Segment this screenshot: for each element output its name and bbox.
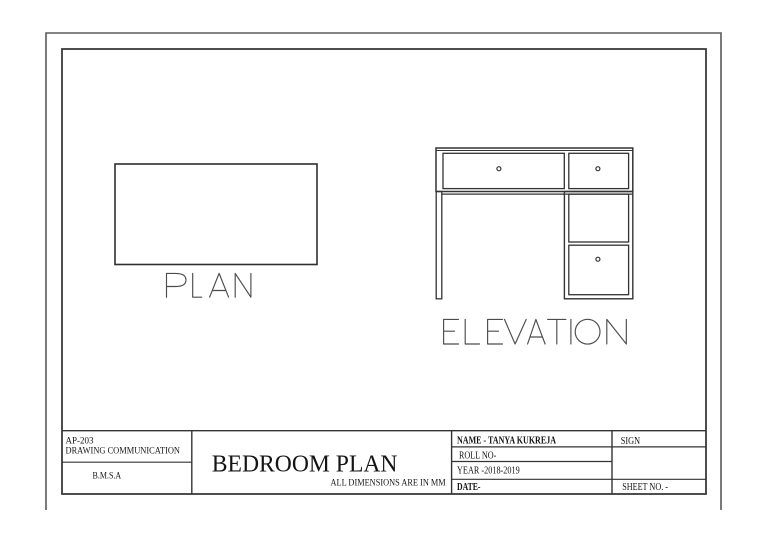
svg-text:B.M.S.A: B.M.S.A — [93, 472, 122, 482]
svg-text:NAME - TANYA KUKREJA: NAME - TANYA KUKREJA — [457, 436, 556, 447]
svg-text:YEAR -2018-2019: YEAR -2018-2019 — [457, 466, 520, 477]
svg-text:SHEET NO. -: SHEET NO. - — [622, 482, 668, 493]
svg-text:ROLL NO-: ROLL NO- — [459, 451, 496, 462]
svg-text:BEDROOM PLAN: BEDROOM PLAN — [212, 450, 398, 477]
svg-text:ALL DIMENSIONS ARE IN MM: ALL DIMENSIONS ARE IN MM — [331, 477, 446, 488]
svg-text:SIGN: SIGN — [621, 436, 640, 447]
svg-text:AP-203: AP-203 — [66, 436, 95, 446]
svg-text:DRAWING COMMUNICATION: DRAWING COMMUNICATION — [66, 446, 181, 456]
svg-text:DATE-: DATE- — [457, 482, 481, 493]
